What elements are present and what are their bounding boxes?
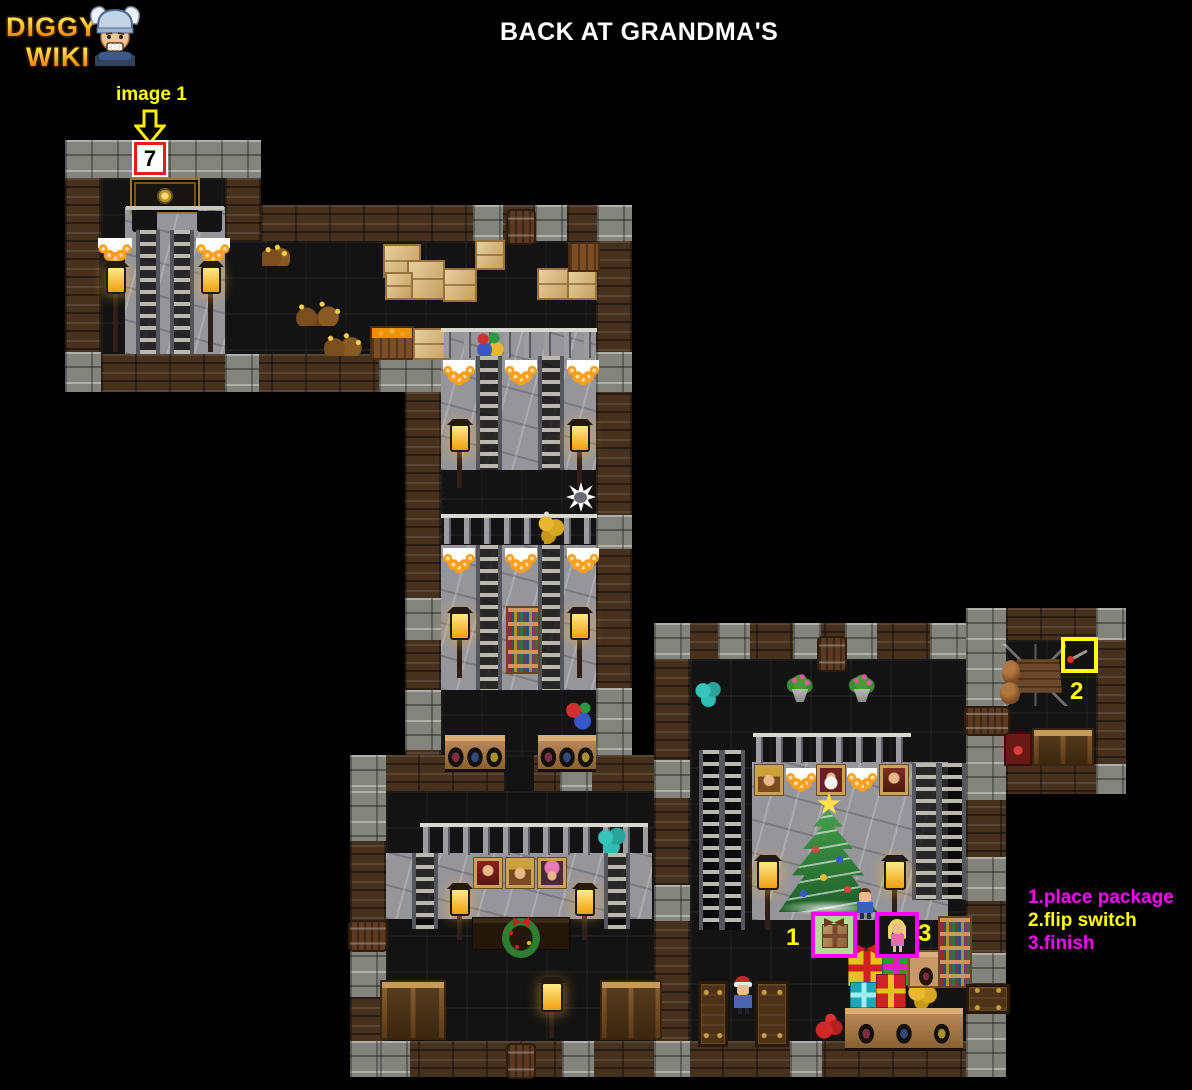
barrel-icon: [506, 1043, 536, 1079]
legend-item: 2.flip switch: [1028, 909, 1174, 932]
wall: [654, 885, 690, 921]
ladder-icon: [538, 356, 564, 470]
wall: [65, 178, 101, 354]
rat-icon: [566, 482, 596, 512]
ornament-balls-icon: [564, 698, 594, 734]
crate-icon: [568, 242, 600, 272]
lantern-post: [577, 636, 582, 678]
wall: [597, 205, 632, 241]
game-map: [0, 0, 1192, 1090]
jug-icon: [1000, 682, 1020, 704]
portrait-icon: [474, 858, 502, 888]
wall: [1096, 640, 1126, 764]
wall: [654, 1041, 690, 1077]
jug-icon: [1002, 660, 1020, 684]
flower-pot-icon: [848, 672, 876, 702]
step2-label: 2: [1070, 678, 1083, 706]
portrait-icon: [880, 765, 908, 795]
barrel-icon: [817, 636, 847, 672]
ladder-icon: [721, 750, 745, 930]
cardboard-box-icon: [385, 272, 413, 300]
cardboard-box-icon: [475, 240, 505, 270]
wall: [350, 791, 386, 841]
wall: [966, 857, 1006, 901]
garland-icon: [567, 360, 599, 386]
lantern-icon: [884, 860, 906, 890]
legend-item: 3.finish: [1028, 932, 1174, 955]
pillar-cap: [132, 211, 157, 232]
ladder-icon: [476, 356, 502, 470]
garland-icon: [847, 768, 877, 792]
lantern-post: [549, 1008, 554, 1038]
portrait-icon: [817, 765, 845, 795]
tree-ornament: [800, 890, 807, 897]
mine-cart-icon: [1014, 654, 1062, 698]
tree-ornament: [844, 886, 851, 893]
wall: [966, 732, 1006, 800]
garland-icon: [196, 238, 230, 265]
legend-item: 1.place package: [1028, 886, 1174, 909]
cardboard-box-icon: [567, 268, 597, 300]
garland-icon: [567, 548, 599, 574]
wall: [718, 623, 750, 659]
ladder-icon: [538, 545, 564, 690]
balustrade-icon: [441, 514, 597, 544]
gold-ore-icon: [288, 298, 350, 326]
ornament-balls-icon: [694, 680, 724, 708]
garland-icon: [786, 768, 816, 792]
lantern-post: [457, 448, 462, 488]
ladder-icon: [412, 853, 438, 929]
ladder-icon: [912, 763, 940, 900]
lantern-icon: [201, 266, 221, 294]
lantern-icon: [757, 860, 779, 890]
wall: [1006, 608, 1096, 640]
balustrade-icon: [753, 733, 911, 763]
wall: [845, 623, 877, 659]
ladder-icon: [476, 545, 502, 690]
present-icon: [850, 982, 878, 1008]
garland-icon: [505, 548, 537, 574]
ladder-icon: [604, 853, 630, 929]
garland-icon: [505, 360, 537, 386]
wall: [405, 690, 441, 750]
shelf-icon: [538, 735, 596, 772]
cardboard-box-icon: [443, 268, 477, 302]
wooden-door-icon: [966, 984, 1010, 1014]
barrel-icon: [964, 706, 1010, 736]
wall: [225, 354, 259, 392]
finish-highlight-box: [875, 912, 919, 958]
ladder-icon: [938, 763, 966, 900]
bookshelf-icon: [938, 916, 972, 988]
red-box-icon: [1004, 732, 1032, 766]
wall: [966, 953, 1006, 983]
step1-label: 1: [786, 924, 799, 952]
wall: [65, 352, 101, 392]
wall: [350, 755, 386, 791]
wall: [1006, 764, 1096, 794]
gold-ore-icon: [262, 242, 290, 266]
tree-ornament: [836, 856, 843, 863]
tree-ornament: [820, 874, 827, 881]
wooden-door-icon: [755, 981, 789, 1047]
wreath-icon: [502, 918, 540, 958]
lantern-icon: [106, 266, 126, 294]
wall: [654, 760, 690, 798]
lantern-icon: [570, 424, 590, 452]
legend: 1.place package 2.flip switch 3.finish: [1028, 886, 1174, 955]
lantern-post: [113, 290, 118, 352]
balustrade-icon: [441, 328, 597, 358]
ladder-icon: [170, 230, 194, 354]
map-canvas: DIGGY'S WIKI BACK AT GRANDMA'S: [0, 0, 1192, 1090]
tree-ornament: [812, 846, 819, 853]
ornament-balls-icon: [596, 826, 628, 856]
cabinet-icon: [600, 980, 662, 1040]
wall: [562, 1041, 594, 1077]
lantern-post: [457, 636, 462, 678]
block-arrow-down-icon: [134, 109, 166, 145]
shelf-icon: [445, 735, 505, 772]
garland-icon: [443, 548, 475, 574]
passage-gap: [504, 755, 534, 791]
image1-label: image 1: [116, 84, 187, 106]
bookshelf-icon: [506, 606, 540, 674]
garland-icon: [98, 238, 132, 265]
wall: [261, 205, 632, 241]
ornament-balls-icon: [536, 510, 566, 544]
wall: [654, 623, 690, 659]
garland-icon: [443, 360, 475, 386]
wall: [225, 178, 261, 241]
wall: [596, 241, 632, 764]
cardboard-box-icon: [537, 268, 571, 300]
ladder-icon: [136, 230, 160, 354]
lantern-post: [577, 448, 582, 488]
display-cabinet-icon: [1032, 728, 1094, 766]
package-highlight-box: [811, 912, 857, 958]
grandma-character-icon: [732, 976, 754, 1014]
wall: [596, 688, 632, 764]
barrel-icon: [506, 209, 536, 245]
wall: [1096, 608, 1126, 640]
step3-label: 3: [918, 920, 931, 948]
portrait-icon: [755, 765, 783, 795]
wall: [930, 623, 966, 659]
door-lintel: [126, 206, 224, 210]
gift-package-icon: [822, 924, 848, 948]
lantern-post: [765, 886, 770, 930]
wooden-door-icon: [698, 981, 728, 1047]
boy-character-icon: [855, 888, 875, 919]
vegetable-crate-icon: [370, 326, 414, 360]
wall: [790, 1041, 822, 1077]
portrait-icon: [538, 858, 566, 888]
wall: [405, 598, 441, 640]
portrait-icon: [506, 858, 534, 888]
lantern-post: [208, 290, 213, 352]
exit-marker: 7: [134, 142, 166, 175]
cabinet-icon: [380, 980, 446, 1040]
lantern-post: [582, 912, 587, 940]
girl-character-icon: [887, 919, 907, 952]
flower-pot-icon: [786, 672, 814, 702]
wall: [380, 1041, 410, 1077]
wall: [1096, 764, 1126, 794]
wall: [596, 515, 632, 549]
present-icon: [876, 974, 906, 1008]
lantern-icon: [450, 888, 470, 916]
lantern-icon: [541, 982, 563, 1012]
switch-highlight-box: [1061, 637, 1098, 673]
wall: [596, 352, 632, 392]
lantern-post: [457, 912, 462, 940]
ladder-icon: [699, 750, 723, 930]
lantern-icon: [450, 424, 470, 452]
wall: [966, 1008, 1006, 1077]
lantern-icon: [450, 612, 470, 640]
wall: [535, 205, 567, 241]
shelf-icon: [845, 1008, 963, 1051]
pillar-cap: [197, 211, 222, 232]
barrel-icon: [348, 920, 388, 952]
gold-ore-icon: [320, 330, 368, 356]
lantern-icon: [570, 612, 590, 640]
wall: [473, 205, 503, 241]
lantern-icon: [575, 888, 595, 916]
ornament-balls-icon: [814, 1012, 846, 1042]
